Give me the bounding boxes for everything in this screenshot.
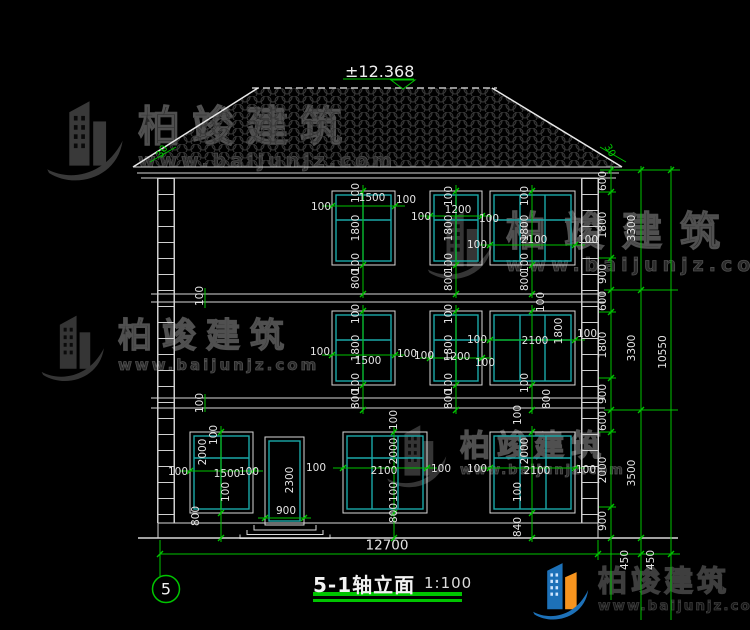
dim-label: 100 [195,393,206,413]
dim-label: 600 [598,171,609,191]
dim-label: 100 [444,304,455,324]
text-layer: ±12.368 5 5-1轴立面 1:100 60018009006001800… [0,0,750,630]
dim-label: 2300 [285,467,296,494]
dim-label: 1800 [598,212,609,239]
dim-label: 2000 [389,438,400,465]
dim-label: 800 [444,271,455,291]
dim-label: 2100 [524,466,551,477]
dim-label: 800 [444,389,455,409]
dim-label: 900 [598,384,609,404]
dim-label: 2100 [521,235,548,246]
dim-label: 12700 [366,539,409,553]
drawing-scale: 1:100 [424,574,472,592]
dim-label: 800 [542,389,553,409]
elevation-sheet: 柏竣建筑 www.baijunjz.com 柏竣建筑 www.baijunjz.… [0,0,750,630]
dim-label: 100 [310,347,330,358]
dim-label: 100 [168,467,188,478]
dim-label: 100 [431,464,451,475]
dim-label: 100 [467,464,487,475]
dim-label: 900 [276,506,296,517]
dim-label: 100 [479,214,499,225]
dim-label: 3500 [627,460,638,487]
dim-label: 100 [467,240,487,251]
dim-label: 600 [598,291,609,311]
dim-label: 2100 [522,336,549,347]
dim-label: 100 [209,425,220,445]
dim-label: 100 [467,335,487,346]
dim-label: 800 [191,506,202,526]
dim-label: 100 [389,482,400,502]
dim-label: 900 [598,511,609,531]
dim-label: 1800 [598,332,609,359]
dim-label: 2000 [198,439,209,466]
dim-label: 800 [520,271,531,291]
dim-label: 100 [389,410,400,430]
dim-label: 30 [155,144,170,160]
dim-label: 100 [536,292,547,312]
roof-elevation-mark: ±12.368 [345,62,414,81]
dim-label: 100 [396,195,416,206]
dim-label: 450 [620,550,631,570]
dim-label: 100 [221,482,232,502]
dim-label: 800 [351,389,362,409]
dim-label: 1500 [214,469,241,480]
dim-label: 800 [389,503,400,523]
dim-label: 100 [414,351,434,362]
dim-label: 840 [513,517,524,537]
axis-bubble-label: 5 [161,580,171,599]
dim-label: 3300 [627,215,638,242]
dim-label: 100 [311,202,331,213]
dim-label: 100 [411,212,431,223]
dim-label: 2000 [520,438,531,465]
dim-label: 100 [578,235,598,246]
dim-label: 1800 [351,215,362,242]
drawing-title: 5-1轴立面 [313,569,415,598]
dim-label: 1500 [355,356,382,367]
dim-label: 100 [239,467,259,478]
dim-label: 100 [513,482,524,502]
dim-label: 100 [576,465,596,476]
dim-label: 30 [601,143,616,159]
dim-label: 10550 [658,335,669,368]
dim-label: 100 [306,463,326,474]
dim-label: 3300 [627,335,638,362]
dim-label: 1200 [444,352,471,363]
dim-label: 450 [646,550,657,570]
dim-label: 100 [520,186,531,206]
dim-label: 1800 [444,215,455,242]
dim-label: 600 [598,411,609,431]
dim-label: 100 [351,304,362,324]
dim-label: 2100 [371,466,398,477]
dim-label: 800 [351,269,362,289]
dim-label: 100 [520,373,531,393]
dim-label: 100 [475,358,495,369]
dim-label: 100 [513,405,524,425]
dim-label: 1200 [445,205,472,216]
dim-label: 100 [577,329,597,340]
dim-label: 1500 [359,193,386,204]
dim-label: 100 [195,286,206,306]
dim-label: 2000 [598,457,609,484]
dim-label: 900 [598,264,609,284]
dim-label: 1800 [554,318,565,345]
